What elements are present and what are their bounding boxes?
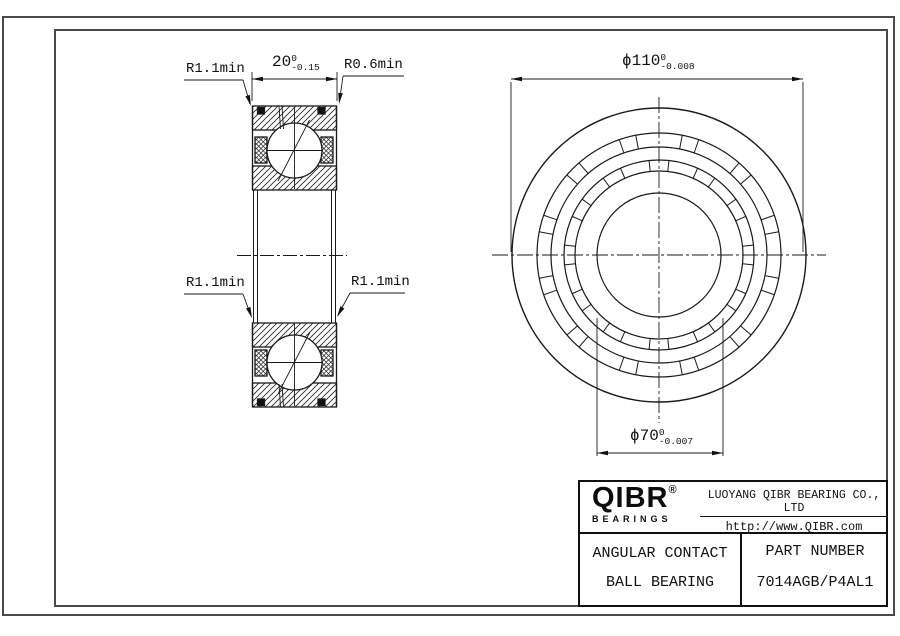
- od-dimension-text: ϕ110 0 -0.008: [622, 53, 695, 71]
- width-dimension: [252, 72, 337, 101]
- width-dimension-text: 20 0 -0.15: [272, 54, 320, 72]
- radius-label-mid-right: R1.1min: [351, 275, 410, 290]
- logo-subtext: BEARINGS: [592, 514, 677, 524]
- bore-value: ϕ70: [630, 428, 659, 444]
- product-name-line2: BALL BEARING: [580, 574, 740, 591]
- radius-label-mid-left: R1.1min: [186, 276, 245, 291]
- drawing-sheet: R1.1min R0.6min R1.1min R1.1min 20 0 -0.…: [0, 0, 900, 636]
- bore-lines: [254, 190, 336, 323]
- registered-trademark-icon: ®: [669, 484, 677, 496]
- section-view: [184, 72, 405, 407]
- radius-label-top-left: R1.1min: [186, 62, 245, 77]
- company-underline: [700, 516, 886, 517]
- logo-text: QIBR: [592, 482, 669, 514]
- od-tol-lower: -0.008: [660, 62, 694, 71]
- bore-tol-lower: -0.007: [659, 437, 693, 446]
- od-value: ϕ110: [622, 53, 660, 69]
- part-number-value: 7014AGB/P4AL1: [742, 574, 888, 591]
- title-block: QIBR® BEARINGS LUOYANG QIBR BEARING CO.,…: [578, 480, 888, 607]
- product-name-line1: ANGULAR CONTACT: [580, 545, 740, 562]
- section-bottom: [253, 323, 337, 407]
- radius-label-top-right: R0.6min: [344, 58, 403, 73]
- company-logo: QIBR® BEARINGS: [592, 484, 677, 524]
- part-number-label: PART NUMBER: [742, 543, 888, 560]
- width-tol-lower: -0.15: [291, 63, 320, 72]
- width-value: 20: [272, 54, 291, 70]
- company-website: http://www.QIBR.com: [702, 520, 886, 534]
- section-top: [253, 106, 337, 190]
- company-name: LUOYANG QIBR BEARING CO., LTD: [702, 489, 886, 515]
- bore-dimension-text: ϕ70 0 -0.007: [630, 428, 693, 446]
- front-view: [492, 79, 826, 456]
